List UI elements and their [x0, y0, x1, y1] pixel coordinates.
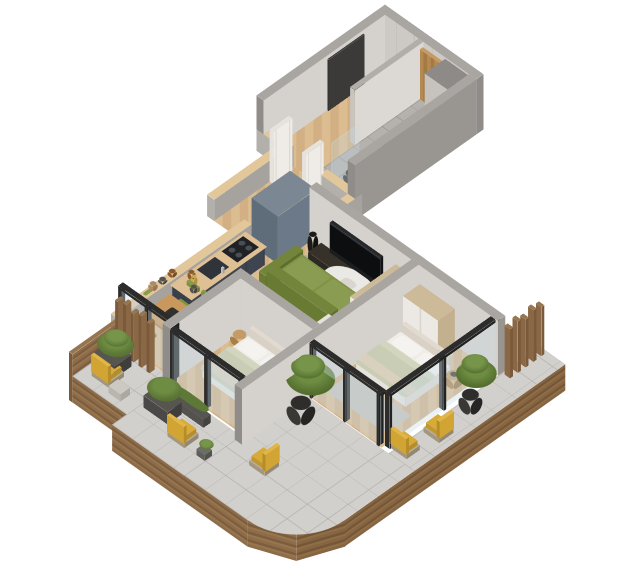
armchair-back-east-face	[406, 437, 409, 455]
slat-screen-east-fin-east-face	[526, 317, 529, 367]
floorplan-render	[0, 0, 640, 576]
slat-screen-east-fin-east-face	[533, 308, 536, 362]
bedroom1-west-wall-south-face	[163, 323, 170, 383]
bedroom-partition-wall-south-face	[235, 384, 242, 444]
slat-screen-east-fin-east-face	[518, 319, 521, 373]
corridor-stub-west-south-face	[207, 195, 214, 222]
slat-screen-west-fin-east-face	[149, 320, 154, 373]
slat-screen-east-fin-east-face	[510, 327, 513, 378]
bed2-glass-post-east-face	[444, 356, 446, 411]
bath-wall-north-east-face	[476, 74, 483, 134]
armchair-back-east-face	[184, 425, 187, 444]
armchair-back-east-face	[108, 365, 111, 384]
slat-screen-east-fin-east-face	[541, 305, 544, 356]
